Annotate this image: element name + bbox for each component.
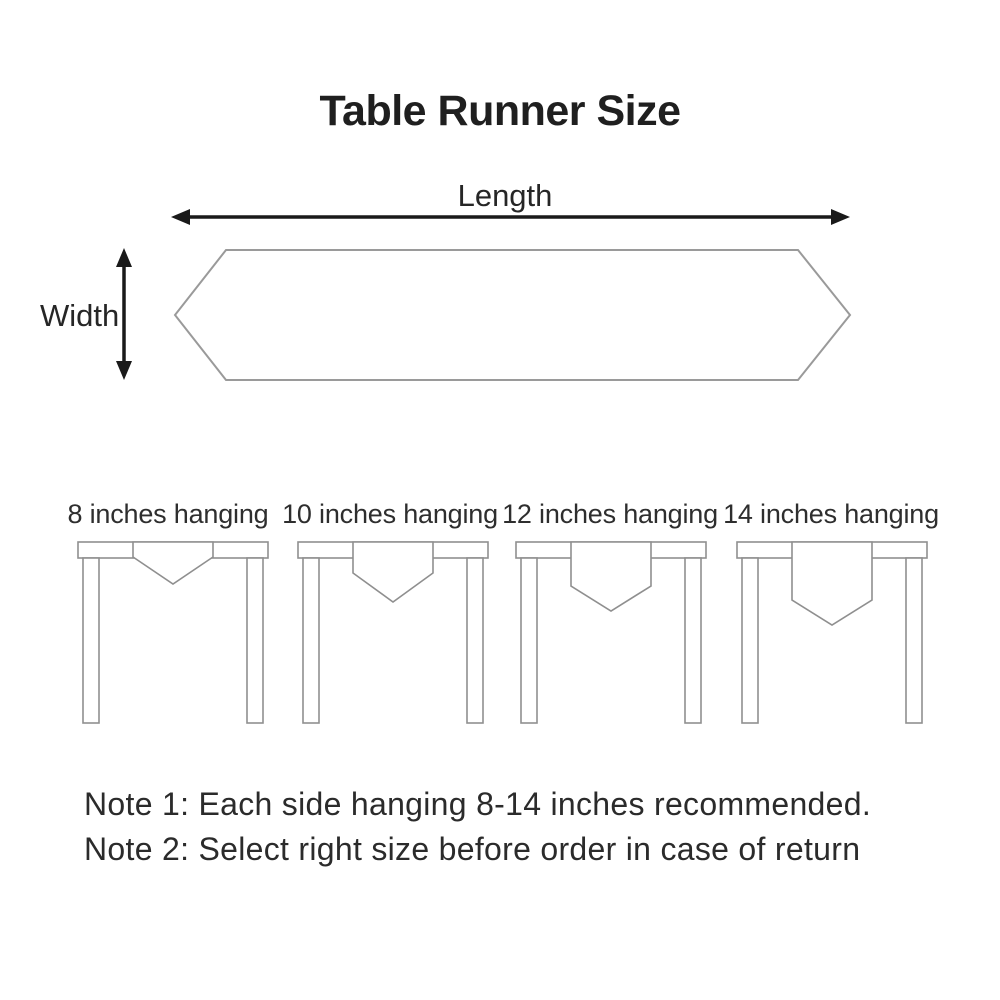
table-leg-left [303,558,319,723]
runner-drop [571,542,651,611]
arrow-right-tip-icon [831,209,850,225]
table-label-12in: 12 inches hanging [502,499,718,530]
table-leg-left [742,558,758,723]
table-diagram-14in [737,542,927,723]
table-leg-right [685,558,701,723]
note-1: Note 1: Each side hanging 8-14 inches re… [84,786,871,823]
infographic-canvas: Table Runner Size Length Width 8 inches … [0,0,1000,1000]
table-leg-left [521,558,537,723]
table-label-10in: 10 inches hanging [282,499,498,530]
runner-drop [133,542,213,584]
width-label: Width [40,298,119,334]
table-leg-right [467,558,483,723]
length-label: Length [458,178,553,214]
page-title: Table Runner Size [319,87,680,136]
note-2: Note 2: Select right size before order i… [84,831,860,868]
runner-drop [353,542,433,602]
table-label-14in: 14 inches hanging [723,499,939,530]
table-diagram-12in [516,542,706,723]
table-leg-left [83,558,99,723]
arrow-down-tip-icon [116,361,132,380]
table-diagram-8in [78,542,268,723]
table-diagram-10in [298,542,488,723]
table-leg-right [247,558,263,723]
runner-drop [792,542,872,625]
arrow-up-tip-icon [116,248,132,267]
table-leg-right [906,558,922,723]
runner-outline [175,250,850,380]
arrow-left-tip-icon [171,209,190,225]
table-label-8in: 8 inches hanging [68,499,269,530]
